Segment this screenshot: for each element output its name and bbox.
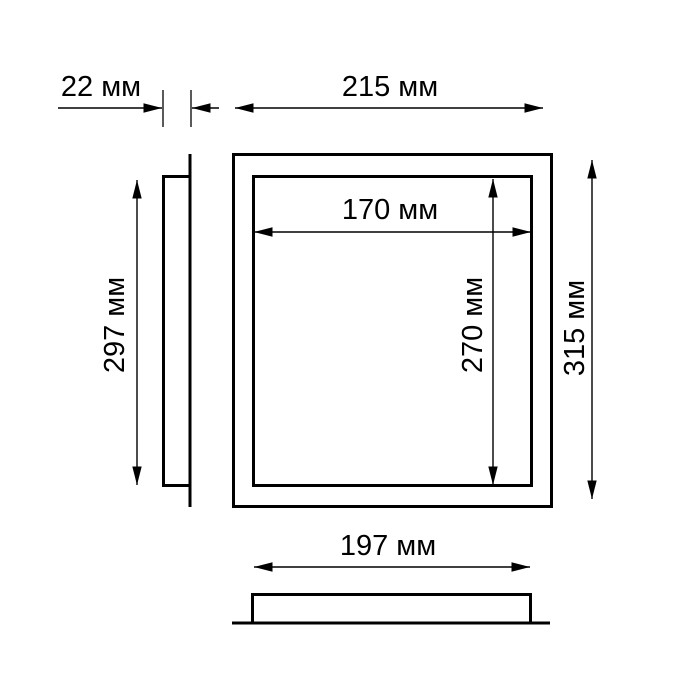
side-view-body bbox=[164, 177, 191, 486]
dim-outer-height-label: 315 мм bbox=[559, 280, 591, 376]
dim-inner-width-label: 170 мм bbox=[342, 194, 438, 226]
dim-frame-depth-label: 22 мм bbox=[61, 71, 141, 103]
dim-outer-width-label: 215 мм bbox=[342, 71, 438, 103]
bottom-view-body bbox=[253, 595, 531, 624]
dim-side-height-label: 297 мм bbox=[99, 277, 131, 373]
dim-inner-height-label: 270 мм bbox=[457, 277, 489, 373]
drawing-canvas: 22 мм 215 мм 170 мм 270 мм 297 мм 315 мм… bbox=[0, 0, 700, 700]
technical-drawing-svg: 22 мм 215 мм 170 мм 270 мм 297 мм 315 мм… bbox=[0, 0, 700, 700]
dim-recess-width-label: 197 мм bbox=[340, 530, 436, 562]
